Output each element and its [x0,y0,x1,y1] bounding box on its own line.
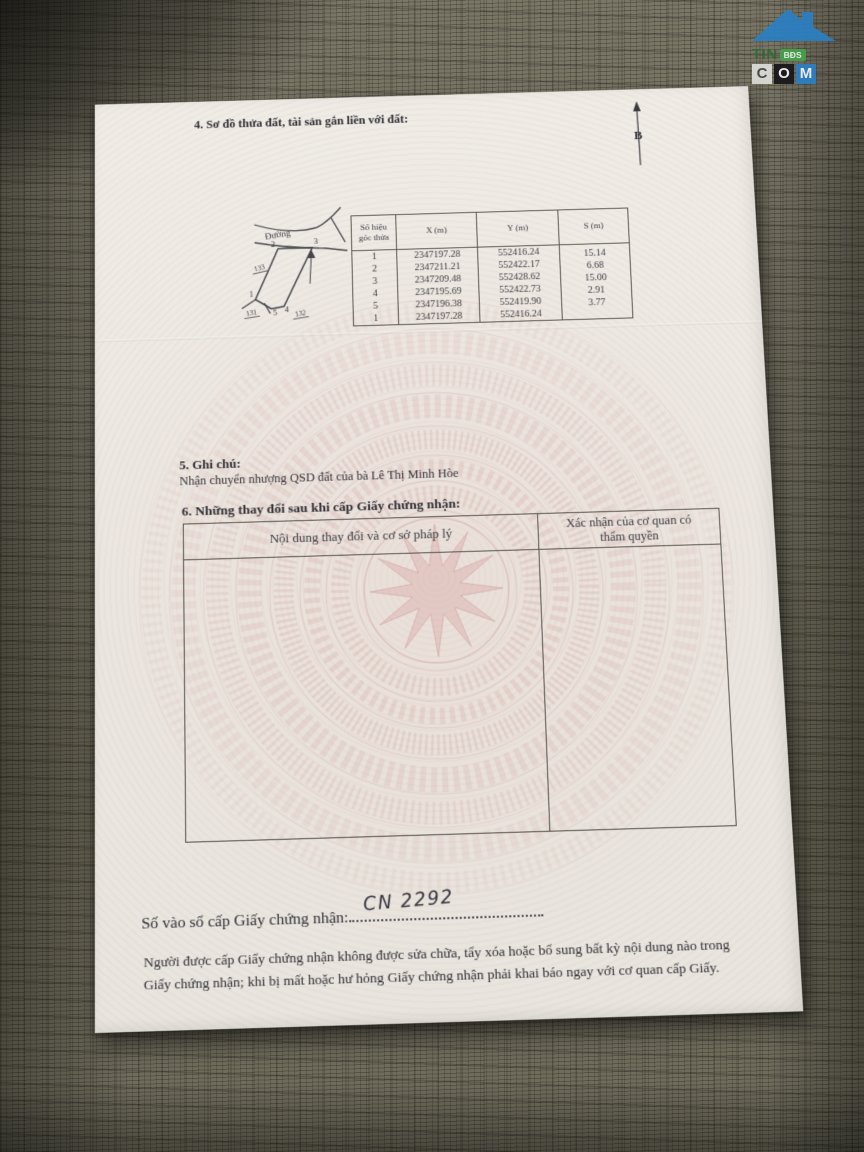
vertex-label-1: 1 [249,290,253,299]
logo-letter-o: O [774,64,794,84]
vertex-label-2: 2 [271,240,275,249]
house-roof-icon [750,5,838,43]
coord-cell-id: 1 [353,312,398,326]
section5-title: 5. Ghi chú: [179,456,241,474]
road-lower-line [255,240,348,253]
changes-empty-row [184,544,737,842]
changes-table: Nội dung thay đổi và cơ sở pháp lý Xác n… [183,508,737,843]
certificate-page: 4. Sơ đồ thửa đất, tài sản gắn liền với … [95,86,803,1033]
coord-header-s: S (m) [558,208,630,245]
logo-letter-c: C [752,64,772,84]
site-watermark-logo: TIN BĐS C O M [750,5,850,84]
north-label: B [634,129,644,143]
photo-of-land-certificate: { "watermark": { "word": "TIN", "badge":… [0,0,864,1152]
coord-header-x: X (m) [396,212,478,249]
vertex-label-3: 3 [314,237,318,246]
changes-header-confirm: Xác nhận của cơ quan có thẩm quyền [538,508,721,549]
changes-cell-confirm [539,544,736,831]
neighbor-label-131: 131 [245,307,258,318]
road-branch-line [331,218,345,243]
logo-badge: BĐS [780,49,806,61]
coord-header-corner: Số hiệu góc thửa [351,215,397,251]
parcel-sketch: Đường 1 2 3 4 5 133 131 132 [231,199,360,340]
coord-header-corner-line2: góc thửa [352,232,396,244]
logo-word: TIN [752,46,778,63]
changes-cell-content [184,549,550,842]
north-arrow-icon: B [622,100,654,167]
coordinates-table: Số hiệu góc thửa X (m) Y (m) S (m) 1 234… [350,208,633,327]
registry-dotted-line: CN 2292 [349,894,544,922]
road-label: Đường [264,229,291,243]
vertex-label-4: 4 [285,305,290,314]
logo-com-row: C O M [752,64,850,84]
coord-cell-y: 552416.24 [480,307,563,322]
logo-letter-m: M [796,64,816,84]
parcel-boundary [255,248,314,310]
coord-cell-x: 2347197.28 [398,309,480,324]
neighbor-label-132: 132 [294,308,307,319]
logo-word-row: TIN BĐS [752,46,850,63]
vertex-label-5: 5 [273,308,277,317]
road-upper-line [254,207,341,232]
coord-header-y: Y (m) [476,210,559,247]
